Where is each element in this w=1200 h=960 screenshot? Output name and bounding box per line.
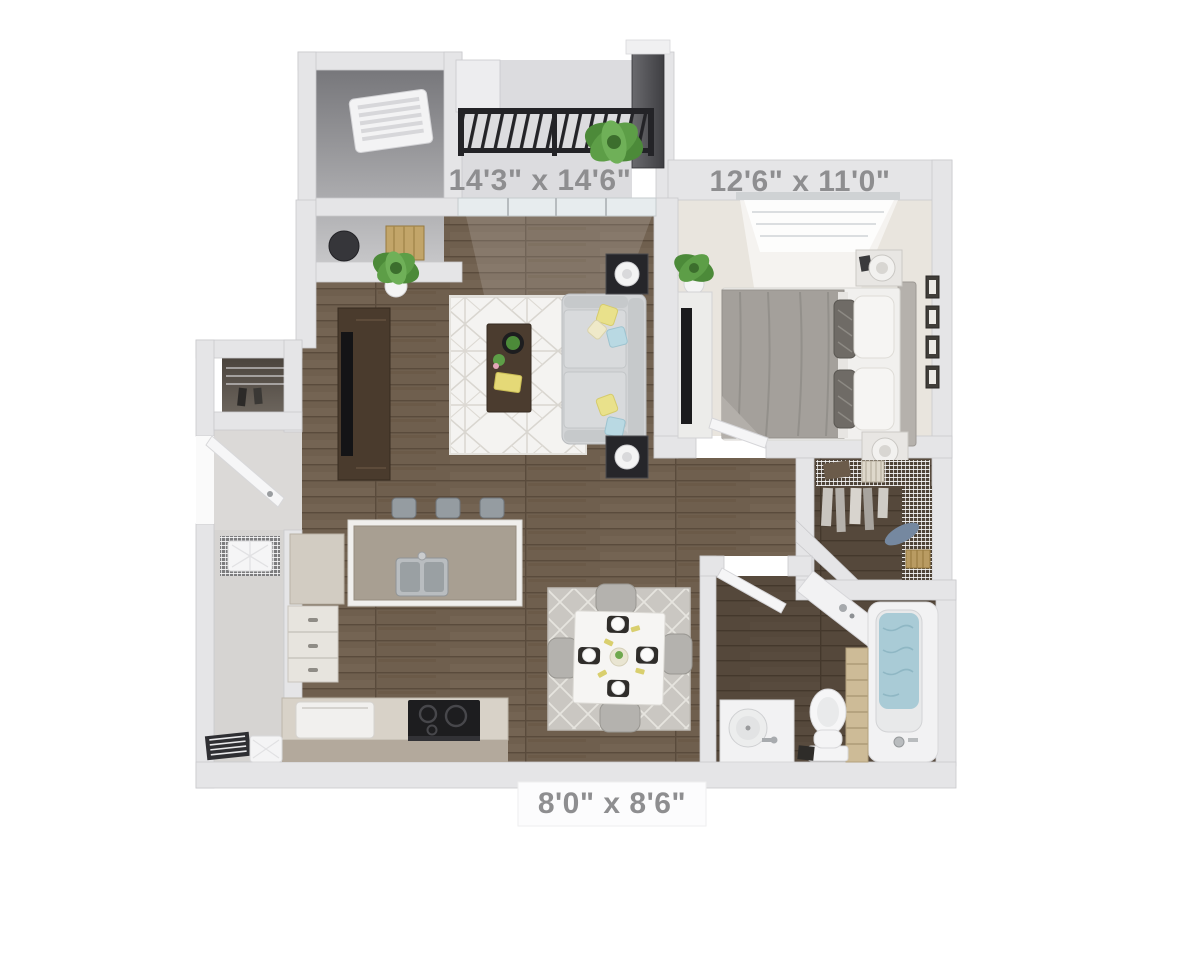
drawer-cabinet [288,606,338,682]
bedroom-tv [681,308,692,424]
coffee-table [487,324,531,412]
pillow-white-2 [854,368,894,430]
pantry-cabinet [290,534,344,604]
accent-pillow-2 [834,370,856,428]
shelf-basket-striped [862,461,884,482]
living-room-dimensions: 14'3" x 14'6" [449,164,632,197]
bed [722,282,916,446]
bathroom-vanity [720,700,794,762]
bedroom-dimensions: 12'6" x 11'0" [709,165,890,198]
side-table-top [606,254,648,294]
sliding-glass-door [458,198,656,216]
storage-basket-bottom [250,736,282,762]
headboard [898,282,916,446]
side-table-bottom [606,436,648,478]
sink-faucet [418,552,426,560]
stove-cooktop [408,700,480,741]
kitchen-island [348,520,522,606]
tv [341,332,353,456]
bathtub [868,602,938,762]
pillow-blue-2 [604,416,625,437]
towel-shelf [846,648,868,762]
hvac-vent [349,89,434,153]
book [494,372,522,392]
dining-area [548,584,692,732]
kitchen-dimensions: 8'0" x 8'6" [538,787,686,820]
tub-faucet [894,737,904,747]
floor-plan-page: 14'3" x 14'6" 12'6" x 11'0" 8'0" x 8'6" [0,0,1200,960]
storage-basket-top [228,541,272,571]
pillow-white [854,296,894,358]
pillow-blue [606,326,628,348]
bedroom-dresser [678,292,712,438]
bar-stools [392,498,504,518]
accent-pillow [834,300,856,358]
door-handle [267,491,273,497]
floor-vent [205,732,251,760]
nightstand-top [856,250,902,286]
closet-basket [906,550,930,568]
water-heater [329,231,359,261]
floor-plan-rendering: 14'3" x 14'6" 12'6" x 11'0" 8'0" x 8'6" [0,0,1200,960]
lower-counter-run [282,698,508,762]
sofa [562,294,646,444]
dining-table [573,611,665,705]
bath-mat [797,745,814,761]
tv-console [338,308,390,480]
